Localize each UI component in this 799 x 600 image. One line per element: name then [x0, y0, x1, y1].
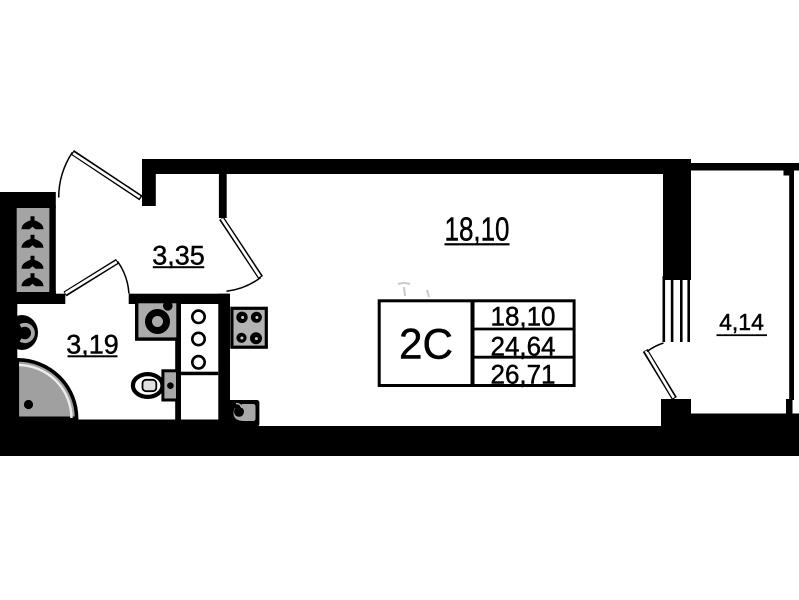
svg-text:18,10: 18,10: [491, 301, 556, 331]
svg-text:26,71: 26,71: [491, 359, 556, 389]
svg-text:3,35: 3,35: [152, 241, 205, 271]
svg-text:18,10: 18,10: [445, 210, 510, 247]
svg-text:2C: 2C: [399, 321, 453, 369]
svg-text:4,14: 4,14: [719, 309, 764, 335]
svg-text:24,64: 24,64: [491, 332, 556, 362]
svg-text:3,19: 3,19: [66, 329, 119, 359]
